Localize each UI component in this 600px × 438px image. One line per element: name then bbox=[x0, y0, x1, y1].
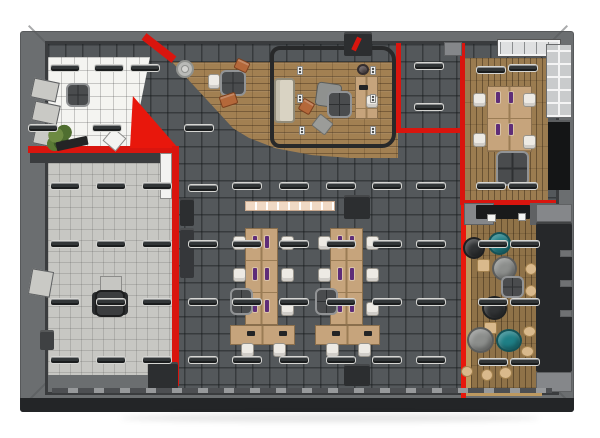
bottom-fascia bbox=[20, 398, 574, 412]
red-wall-corridor-v bbox=[396, 43, 401, 132]
training-room-floor bbox=[48, 163, 172, 375]
red-wall-corridor-h bbox=[396, 128, 464, 133]
executive-office-wall bbox=[270, 46, 396, 148]
wall-band bbox=[30, 153, 172, 163]
red-wall-center bbox=[172, 146, 179, 386]
meeting-room-floor bbox=[464, 58, 548, 200]
window-right bbox=[546, 44, 572, 118]
red-wall-lounge bbox=[461, 205, 466, 398]
red-wall-meeting-left bbox=[460, 43, 465, 205]
window-opening-dark bbox=[548, 120, 570, 190]
bottom-wall-ticks bbox=[52, 388, 552, 393]
red-wall-meeting-bottom bbox=[460, 200, 556, 205]
building-shadow bbox=[120, 414, 540, 422]
cafe-lounge-floor bbox=[466, 206, 542, 396]
floor-plan bbox=[0, 0, 600, 438]
